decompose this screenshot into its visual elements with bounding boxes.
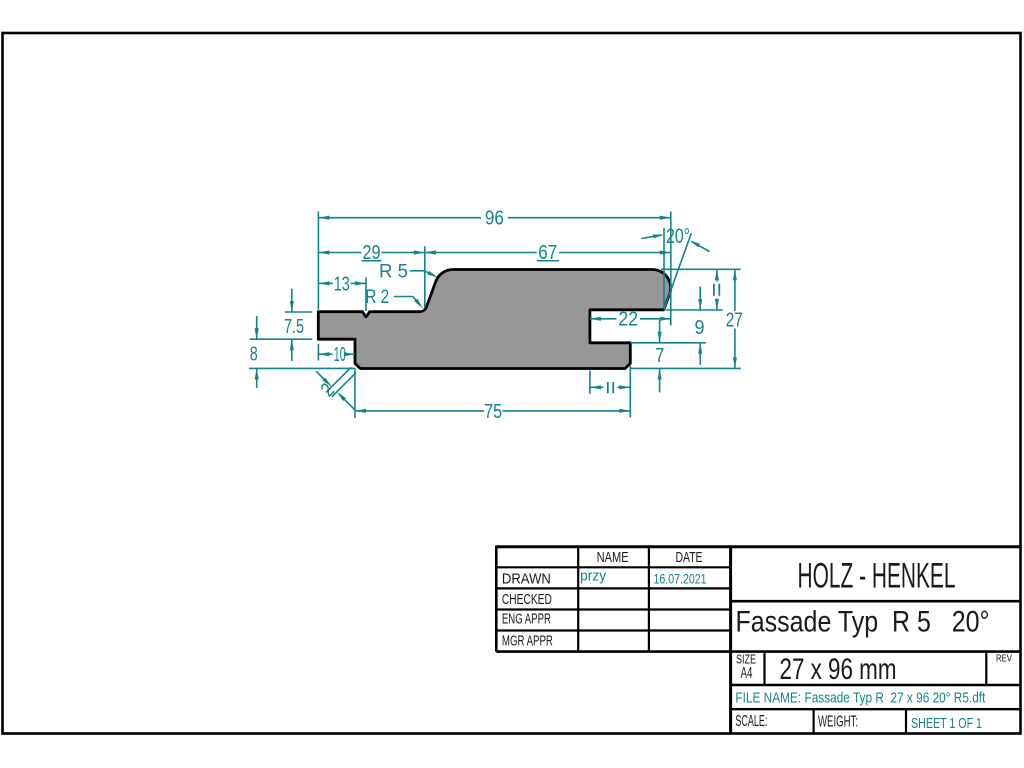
svg-text:20°: 20° — [666, 225, 690, 248]
svg-text:10: 10 — [334, 344, 346, 366]
svg-text:96: 96 — [485, 208, 504, 230]
svg-text:7: 7 — [655, 345, 664, 367]
svg-text:R 5: R 5 — [379, 261, 408, 282]
svg-text:NAME: NAME — [597, 549, 629, 566]
svg-text:R 2: R 2 — [365, 287, 389, 308]
svg-text:DATE: DATE — [676, 549, 703, 566]
svg-text:CHECKED: CHECKED — [502, 591, 552, 608]
svg-text:DRAWN: DRAWN — [502, 571, 551, 588]
svg-text:ENG APPR: ENG APPR — [502, 611, 551, 628]
svg-text:FILE NAME: Fassade Typ R 27 x: FILE NAME: Fassade Typ R 27 x 96 20° R5.… — [735, 691, 985, 707]
svg-text:Fassade Typ R 5 20°: Fassade Typ R 5 20° — [736, 606, 990, 639]
svg-text:SHEET 1 OF 1: SHEET 1 OF 1 — [911, 715, 982, 732]
svg-text:7.5: 7.5 — [284, 316, 304, 338]
svg-text:A4: A4 — [741, 665, 753, 682]
svg-text:HOLZ - HENKEL: HOLZ - HENKEL — [798, 557, 956, 596]
svg-text:WEIGHT:: WEIGHT: — [818, 714, 858, 731]
svg-text:SCALE:: SCALE: — [735, 713, 767, 730]
svg-text:9: 9 — [695, 317, 705, 339]
svg-text:13: 13 — [334, 273, 350, 295]
svg-text:27: 27 — [726, 310, 743, 332]
svg-text:16.07.2021: 16.07.2021 — [654, 571, 707, 587]
svg-text:MGR APPR: MGR APPR — [502, 633, 553, 650]
svg-text:27 x 96 mm: 27 x 96 mm — [780, 653, 897, 686]
svg-text:8: 8 — [250, 344, 258, 366]
svg-text:REV: REV — [996, 653, 1012, 665]
svg-text:22: 22 — [618, 309, 638, 331]
svg-text:przy: przy — [580, 568, 606, 585]
svg-text:75: 75 — [484, 401, 502, 423]
